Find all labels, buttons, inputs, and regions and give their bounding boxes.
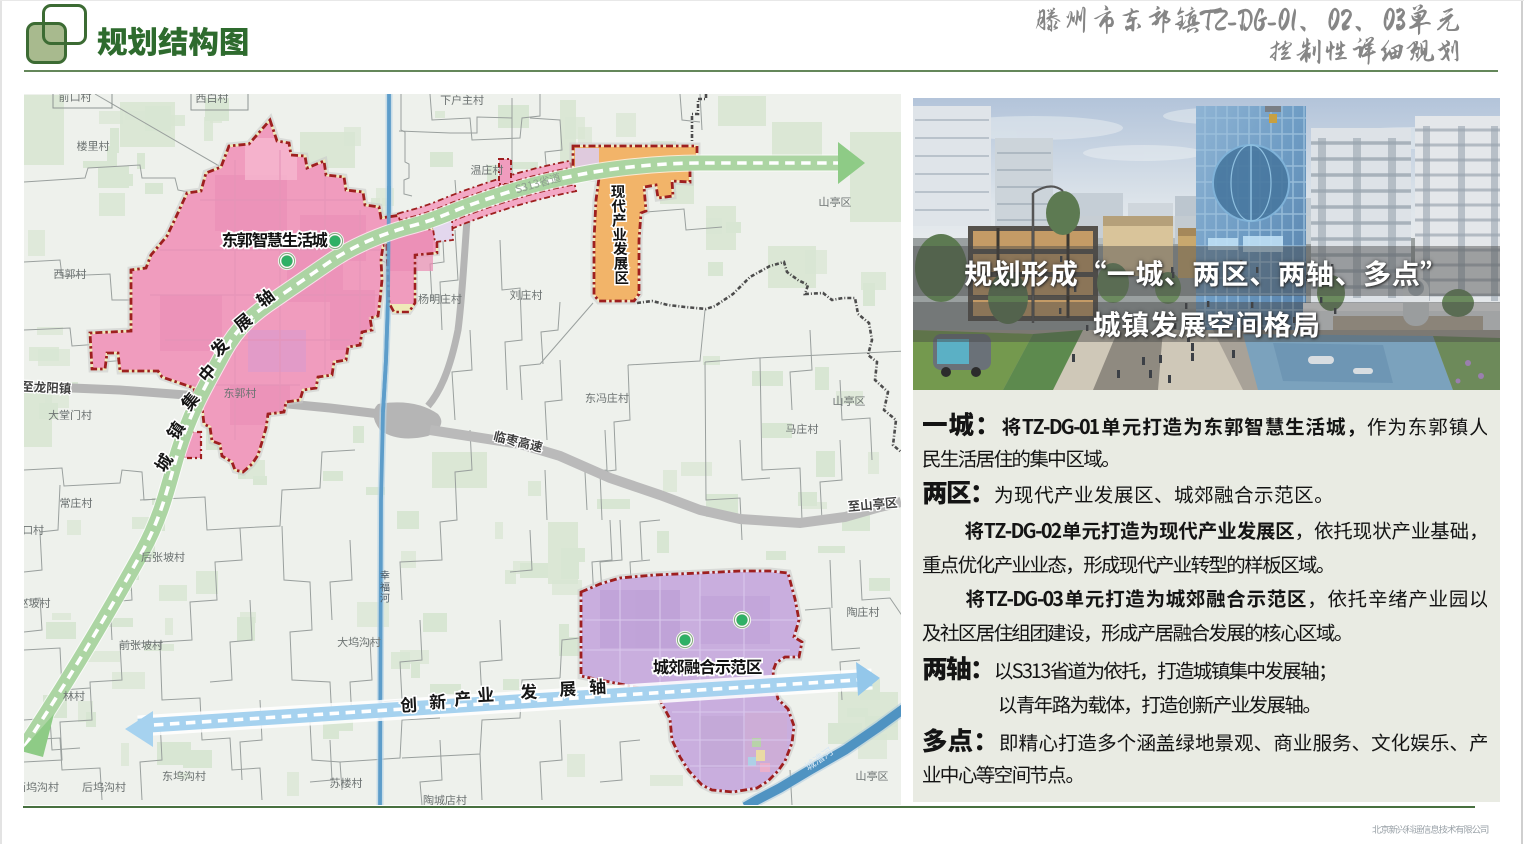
svg-text:苏楼村: 苏楼村 xyxy=(330,775,363,791)
svg-text:展: 展 xyxy=(558,675,576,701)
svg-text:后坞沟村: 后坞沟村 xyxy=(82,779,126,795)
svg-text:温庄村: 温庄村 xyxy=(471,162,504,178)
svg-text:业: 业 xyxy=(476,681,494,707)
svg-text:东坞沟村: 东坞沟村 xyxy=(162,768,206,784)
svg-text:幸福河: 幸福河 xyxy=(378,570,393,604)
svg-text:创: 创 xyxy=(399,691,417,717)
svg-text:后张坡村: 后张坡村 xyxy=(141,549,185,565)
svg-text:常庄村: 常庄村 xyxy=(60,495,93,511)
svg-text:楼里村: 楼里村 xyxy=(77,138,110,154)
svg-text:杨明庄村: 杨明庄村 xyxy=(418,291,462,307)
svg-text:东郭村: 东郭村 xyxy=(224,385,257,401)
svg-text:陶城店村: 陶城店村 xyxy=(423,792,467,805)
svg-text:东冯庄村: 东冯庄村 xyxy=(585,390,629,406)
svg-text:前口村: 前口村 xyxy=(59,94,92,105)
svg-text:赵坡村: 赵坡村 xyxy=(24,595,51,611)
svg-text:至龙阳镇: 至龙阳镇 xyxy=(24,376,72,398)
svg-text:刘庄村: 刘庄村 xyxy=(510,287,543,303)
svg-text:区: 区 xyxy=(614,267,629,288)
svg-text:林村: 林村 xyxy=(62,688,85,704)
svg-text:大堂门村: 大堂门村 xyxy=(48,407,92,423)
svg-text:下户主村: 下户主村 xyxy=(440,94,484,108)
svg-text:西白村: 西白村 xyxy=(196,94,229,106)
svg-text:东郭智慧生活城: 东郭智慧生活城 xyxy=(222,227,329,251)
svg-text:山亭区: 山亭区 xyxy=(819,194,852,210)
svg-text:陶庄村: 陶庄村 xyxy=(847,604,880,620)
svg-text:轴: 轴 xyxy=(588,673,606,699)
svg-text:产: 产 xyxy=(453,685,471,711)
svg-text:山亭区: 山亭区 xyxy=(833,393,866,409)
svg-text:城郊融合示范区: 城郊融合示范区 xyxy=(653,654,762,678)
svg-text:前张坡村: 前张坡村 xyxy=(119,637,163,653)
svg-text:西坞沟村: 西坞沟村 xyxy=(24,779,59,795)
svg-text:山亭区: 山亭区 xyxy=(856,768,889,784)
svg-text:大坞沟村: 大坞沟村 xyxy=(337,634,381,650)
svg-text:马庄村: 马庄村 xyxy=(786,421,819,437)
svg-text:西郭村: 西郭村 xyxy=(54,266,87,282)
svg-text:发: 发 xyxy=(519,678,538,704)
svg-text:新: 新 xyxy=(428,688,446,714)
svg-text:口村: 口村 xyxy=(24,522,44,538)
